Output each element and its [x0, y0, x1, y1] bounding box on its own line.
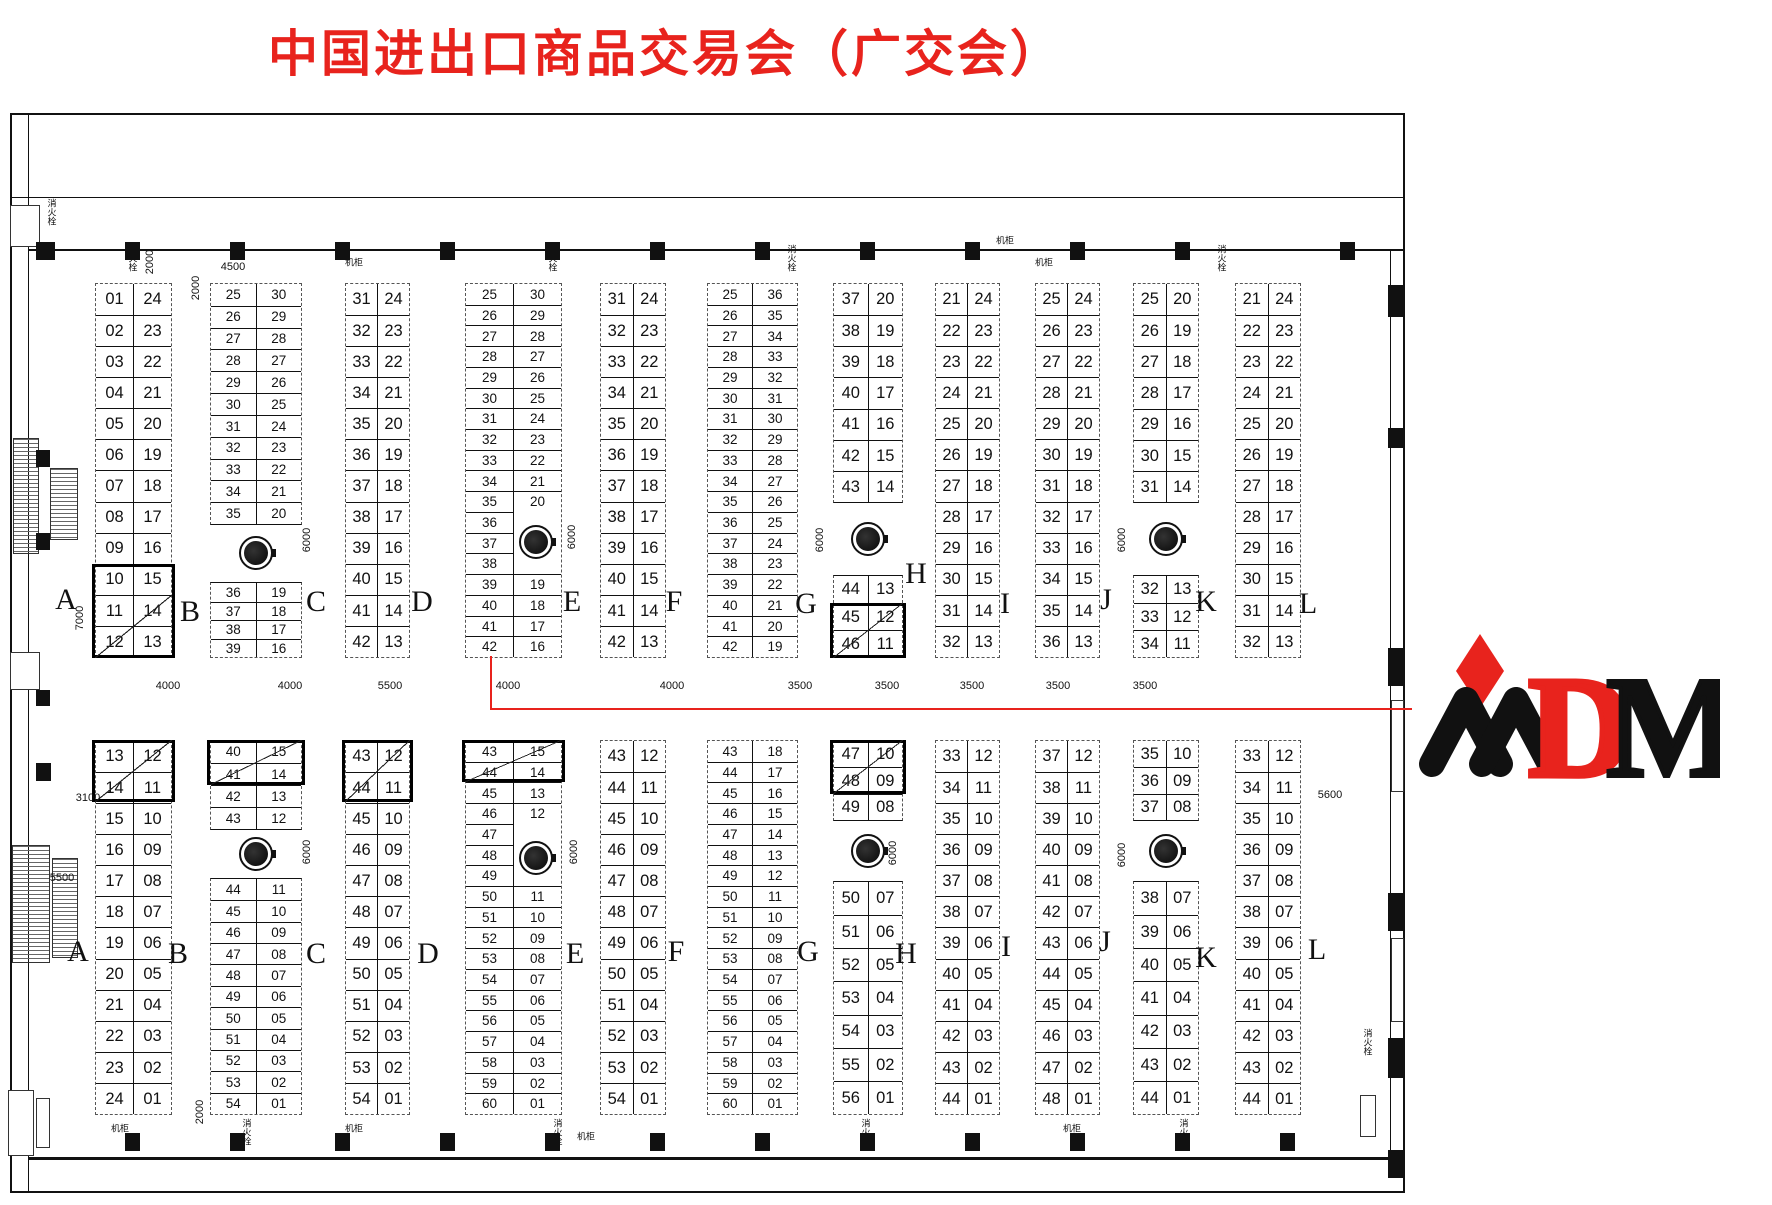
booth-cell: 44 — [936, 1083, 968, 1114]
booth-cell: 19 — [1269, 439, 1301, 470]
booth-row: 2629 — [466, 305, 561, 326]
booth-row: 3510 — [1134, 741, 1198, 767]
booth-cell: 01 — [1068, 1083, 1099, 1114]
booth-cell: 01 — [753, 1093, 797, 1114]
booth-cell: 32 — [601, 315, 634, 346]
booth-cell: 02 — [378, 1052, 409, 1083]
booth-cell: 17 — [134, 502, 171, 533]
booth-cell: 07 — [753, 969, 797, 990]
booth-cell: 31 — [708, 408, 753, 429]
booth-cell: 07 — [869, 882, 903, 915]
booth-cell: 39 — [1236, 927, 1269, 958]
booth-cell: 51 — [346, 990, 378, 1021]
booth-cell: 07 — [514, 969, 561, 990]
booth-cell: 45 — [601, 803, 634, 834]
booth-cell: 20 — [514, 491, 561, 512]
booth-cell: 05 — [96, 408, 134, 439]
booth-cell: 37 — [346, 470, 378, 501]
booth-cell: 35 — [936, 803, 968, 834]
booth-cell: 42 — [601, 626, 634, 657]
booth-cell: 41 — [601, 595, 634, 626]
booth-row: 3520 — [466, 491, 561, 512]
booth-row: 3510 — [936, 803, 999, 834]
structural-column — [755, 242, 770, 260]
booth-cell: 55 — [708, 990, 753, 1011]
booth-cell: 26 — [1134, 315, 1167, 346]
column-fan-icon — [519, 841, 553, 875]
booth-cell: 16 — [1167, 409, 1199, 440]
booth-cell: 29 — [1236, 533, 1269, 564]
booth-cell: 10 — [134, 803, 171, 834]
booth-row: 4912 — [708, 865, 797, 886]
booth-cell: 02 — [968, 1052, 999, 1083]
booth-cell: 49 — [834, 794, 869, 820]
booth-cell: 39 — [466, 574, 514, 595]
dimension-label: 3100 — [76, 792, 100, 804]
booth-row: 4609 — [601, 834, 665, 865]
booth-cell: 26 — [514, 367, 561, 388]
booth-cell: 23 — [634, 315, 666, 346]
dimension-label: 6000 — [1116, 528, 1128, 552]
booth-cell: 09 — [1068, 834, 1099, 865]
booth-cell: 25 — [211, 284, 257, 306]
booth-cell: 14 — [968, 595, 999, 626]
dimension-label: 4000 — [496, 680, 520, 692]
booth-row: 4714 — [708, 824, 797, 845]
booth-row: 5902 — [466, 1073, 561, 1094]
structural-column — [1070, 1133, 1085, 1151]
booth-cell: 37 — [211, 602, 257, 621]
booth-cell: 18 — [869, 346, 903, 377]
booth-row: 3025 — [211, 393, 301, 415]
booth-block: 351036093708 — [1133, 740, 1199, 821]
booth-cell: 25 — [753, 512, 797, 533]
booth-cell: 26 — [257, 371, 302, 393]
booth-row: 0520 — [96, 408, 171, 439]
booth-row: 4009 — [1036, 834, 1099, 865]
booth-row: 3619 — [601, 439, 665, 470]
booth-cell: 37 — [466, 533, 514, 554]
booth-cell: 12 — [257, 807, 302, 829]
booth-row: 2524 — [1036, 284, 1099, 315]
wall-column — [1388, 893, 1404, 931]
booth-cell: 53 — [601, 1052, 634, 1083]
aisle-letter-E: E — [563, 585, 581, 619]
booth-row: 0124 — [96, 284, 171, 315]
booth-row: 3625 — [708, 512, 797, 533]
booth-row: 4017 — [834, 377, 902, 408]
booth-cell: 23 — [1236, 346, 1269, 377]
booth-cell: 10 — [1167, 741, 1199, 767]
structural-column — [650, 1133, 665, 1151]
booth-row: 2728 — [466, 325, 561, 346]
booth-cell: 20 — [753, 616, 797, 637]
booth-cell: 11 — [634, 772, 666, 803]
fan-core — [524, 846, 548, 870]
booth-cell: 17 — [257, 620, 302, 639]
booth-cell: 48 — [708, 845, 753, 866]
booth-cell: 05 — [257, 1007, 302, 1028]
booth-row: 4612 — [466, 803, 561, 824]
booth-row: 3031 — [708, 388, 797, 409]
booth-row: 3817 — [346, 502, 409, 533]
booth-cell: 19 — [134, 439, 171, 470]
wall-label: 消火栓 — [46, 199, 59, 226]
booth-block: 2124222323222421252026192718281729163015… — [935, 283, 1000, 658]
dimension-label: 2000 — [144, 250, 156, 274]
booth-row: 2623 — [1036, 315, 1099, 346]
booth-cell: 22 — [96, 1021, 134, 1052]
booth-row: 2833 — [708, 346, 797, 367]
booth-cell: 27 — [708, 325, 753, 346]
booth-cell: 40 — [1036, 834, 1068, 865]
booth-cell: 50 — [834, 882, 869, 915]
booth-cell: 39 — [708, 574, 753, 595]
booth-block: 2524262327222821292030193118321733163415… — [1035, 283, 1100, 658]
booth-row: 5203 — [601, 1021, 665, 1052]
booth-cell: 52 — [211, 1050, 257, 1071]
booth-cell: 13 — [257, 785, 302, 807]
booth-cell: 22 — [134, 346, 171, 377]
booth-cell: 05 — [1269, 959, 1301, 990]
booth-row: 2322 — [1236, 346, 1300, 377]
booth-row: 3015 — [1134, 440, 1198, 471]
booth-row: 3411 — [1134, 630, 1198, 657]
booth-cell: 19 — [96, 927, 134, 958]
wall-column — [1388, 1150, 1404, 1178]
booth-cell: 36 — [708, 512, 753, 533]
booth-row: 4708 — [346, 865, 409, 896]
wall-fixture — [1391, 700, 1404, 792]
booth-cell: 38 — [346, 502, 378, 533]
booth-cell: 43 — [708, 741, 753, 762]
booth-cell: 38 — [1134, 882, 1167, 915]
booth-cell: 49 — [601, 927, 634, 958]
booth-row: 2916 — [936, 533, 999, 564]
booth-row: 3015 — [1236, 564, 1300, 595]
booth-cell: 01 — [1269, 1083, 1301, 1114]
booth-cell: 50 — [211, 1007, 257, 1028]
booth-cell: 10 — [968, 803, 999, 834]
booth-block: 2520261927182817291630153114 — [1133, 283, 1199, 503]
structural-column — [965, 1133, 980, 1151]
structural-column — [440, 1133, 455, 1151]
booth-cell: 35 — [1036, 595, 1068, 626]
booth-cell: 23 — [753, 553, 797, 574]
booth-cell: 24 — [514, 408, 561, 429]
booth-row: 4405 — [1036, 959, 1099, 990]
wall-fixture — [1391, 938, 1404, 1022]
booth-cell: 01 — [968, 1083, 999, 1114]
booth-table-upper-C: 3124322333223421352036193718381739164015… — [345, 283, 410, 658]
booth-cell: 28 — [1036, 377, 1068, 408]
booth-cell: 14 — [753, 824, 797, 845]
booth-cell: 30 — [936, 564, 968, 595]
booth-row: 4906 — [211, 986, 301, 1007]
booth-cell: 58 — [466, 1052, 514, 1073]
booth-cell: 38 — [834, 315, 869, 346]
booth-cell: 06 — [134, 927, 171, 958]
booth-row: 4510 — [211, 900, 301, 921]
booth-row: 2718 — [1236, 470, 1300, 501]
entrance-diagonal — [95, 740, 172, 802]
booth-cell: 04 — [96, 377, 134, 408]
booth-row: 5407 — [466, 969, 561, 990]
booth-cell: 30 — [466, 388, 514, 409]
dimension-label: 6000 — [301, 840, 313, 864]
fan-nub — [271, 850, 276, 858]
booth-cell: 46 — [1036, 1021, 1068, 1052]
fan-nub — [883, 535, 888, 543]
booth-cell: 10 — [1269, 803, 1301, 834]
booth-cell: 09 — [514, 927, 561, 948]
booth-cell: 12 — [1167, 603, 1199, 630]
column-fan-icon — [239, 837, 273, 871]
booth-block: 2124222323222421252026192718281729163015… — [1235, 283, 1301, 658]
booth-row: 5005 — [346, 959, 409, 990]
booth-cell: 51 — [834, 915, 869, 948]
booth-row: 5209 — [708, 927, 797, 948]
booth-cell: 40 — [936, 959, 968, 990]
structural-column — [125, 1133, 140, 1151]
booth-cell: 48 — [466, 845, 514, 866]
dimension-label: 4000 — [156, 680, 180, 692]
booth-row: 3807 — [1134, 882, 1198, 915]
booth-cell: 09 — [1269, 834, 1301, 865]
booth-block: 3807390640054104420343024401 — [1133, 881, 1199, 1115]
booth-row: 2520 — [1236, 408, 1300, 439]
booth-cell: 01 — [257, 1093, 302, 1114]
booth-row: 3217 — [1036, 502, 1099, 533]
booth-row: 3916 — [346, 533, 409, 564]
structural-column — [1070, 242, 1085, 260]
fan-core — [1154, 527, 1178, 551]
fan-core — [856, 839, 880, 863]
dimension-label: 6000 — [566, 525, 578, 549]
booth-cell: 40 — [834, 377, 869, 408]
booth-row: 3025 — [466, 388, 561, 409]
booth-row: 4401 — [1236, 1083, 1300, 1114]
booth-cell: 40 — [346, 564, 378, 595]
dimension-label: 7000 — [74, 606, 86, 630]
booth-row: 47 — [466, 824, 561, 845]
booth-row: 3520 — [601, 408, 665, 439]
booth-cell: 33 — [1036, 533, 1068, 564]
booth-cell: 13 — [1269, 626, 1301, 657]
locator-line-horizontal — [490, 708, 1412, 710]
booth-cell: 34 — [708, 470, 753, 491]
booth-row: 3124 — [346, 284, 409, 315]
booth-cell: 08 — [869, 794, 903, 820]
booth-cell: 52 — [466, 927, 514, 948]
booth-row: 2722 — [1036, 346, 1099, 377]
booth-table-upper-G: 2536263527342833293230313130322933283427… — [707, 283, 798, 658]
booth-cell: 35 — [601, 408, 634, 439]
booth-cell: 16 — [257, 639, 302, 658]
booth-cell: 26 — [211, 306, 257, 328]
aisle-letter-D: D — [417, 937, 439, 971]
booth-row: 2817 — [1134, 377, 1198, 408]
booth-cell: 13 — [634, 626, 666, 657]
booth-row: 5011 — [466, 886, 561, 907]
booth-cell: 08 — [1068, 865, 1099, 896]
booth-cell: 08 — [753, 948, 797, 969]
booth-block: 321333123411 — [1133, 575, 1199, 658]
booth-cell: 36 — [1134, 767, 1167, 793]
structural-column — [125, 242, 140, 260]
booth-cell: 31 — [936, 595, 968, 626]
booth-cell: 23 — [134, 315, 171, 346]
wall-fixture — [36, 1098, 50, 1148]
booth-block: 4312441145104609470848074906500551045203… — [600, 740, 666, 1115]
booth-cell: 38 — [466, 553, 514, 574]
booth-row: 4807 — [346, 896, 409, 927]
booth-cell: 46 — [708, 803, 753, 824]
booth-cell: 29 — [514, 305, 561, 326]
booth-cell: 52 — [601, 1021, 634, 1052]
booth-row: 2728 — [211, 328, 301, 350]
booth-row: 4510 — [346, 803, 409, 834]
booth-row: 2920 — [1036, 408, 1099, 439]
booth-row: 4807 — [211, 964, 301, 985]
booth-cell: 31 — [211, 415, 257, 437]
booth-cell: 19 — [514, 574, 561, 595]
floorplan-canvas: 中国进出口商品交易会（广交会） 012402230322042105200619… — [0, 0, 1772, 1205]
booth-row: 5401 — [211, 1093, 301, 1114]
booth-cell: 41 — [346, 595, 378, 626]
structural-column — [545, 1133, 560, 1151]
booth-row: 4203 — [1134, 1015, 1198, 1048]
booth-cell: 22 — [968, 346, 999, 377]
booth-row: 5104 — [346, 990, 409, 1021]
booth-cell: 59 — [466, 1073, 514, 1094]
wall-column — [36, 450, 50, 467]
booth-cell: 34 — [1036, 564, 1068, 595]
dimension-label: 3500 — [960, 680, 984, 692]
booth-cell: 31 — [1036, 470, 1068, 501]
booth-block: 4318441745164615471448134912501151105209… — [707, 740, 798, 1115]
booth-cell: 37 — [708, 533, 753, 554]
booth-cell: 33 — [753, 346, 797, 367]
booth-row: 5407 — [708, 969, 797, 990]
booth-cell: 16 — [134, 533, 171, 564]
booth-row: 0916 — [96, 533, 171, 564]
wall-fixture — [1360, 1095, 1376, 1137]
booth-cell: 28 — [211, 349, 257, 371]
booth-cell: 24 — [753, 533, 797, 554]
booth-cell: 27 — [1236, 470, 1269, 501]
booth-row: 3415 — [1036, 564, 1099, 595]
booth-cell: 36 — [1036, 626, 1068, 657]
booth-cell: 05 — [634, 959, 666, 990]
booth-cell: 22 — [753, 574, 797, 595]
booth-row: 3514 — [1036, 595, 1099, 626]
booth-row: 3223 — [211, 437, 301, 459]
booth-cell: 20 — [134, 408, 171, 439]
booth-cell: 26 — [708, 305, 753, 326]
fan-core — [1154, 839, 1178, 863]
wall-column — [36, 242, 51, 260]
booth-row: 38 — [466, 553, 561, 574]
booth-row: 4411 — [211, 879, 301, 900]
booth-cell: 60 — [466, 1093, 514, 1114]
booth-row: 3619 — [346, 439, 409, 470]
booth-row: 3708 — [936, 865, 999, 896]
booth-cell: 29 — [1134, 409, 1167, 440]
booth-cell: 16 — [968, 533, 999, 564]
booth-cell: 25 — [514, 388, 561, 409]
booth-row: 4513 — [466, 782, 561, 803]
booth-table-upper-E: 2530262927282827292630253124322333223421… — [465, 283, 562, 658]
booth-cell: 27 — [936, 470, 968, 501]
booth-cell: 33 — [936, 741, 968, 772]
booth-cell: 25 — [1236, 408, 1269, 439]
booth-cell: 35 — [466, 491, 514, 512]
booth-row: 3312 — [1236, 741, 1300, 772]
booth-cell: 36 — [601, 439, 634, 470]
booth-table-upper-A: 0124022303220421052006190718081709161015… — [95, 283, 172, 658]
booth-cell: 19 — [1068, 439, 1099, 470]
booth-cell: 34 — [601, 377, 634, 408]
booth-cell: 29 — [211, 371, 257, 393]
booth-row: 5605 — [466, 1010, 561, 1031]
booth-cell: 29 — [257, 306, 302, 328]
booth-row: 3724 — [708, 533, 797, 554]
booth-row: 4702 — [1036, 1052, 1099, 1083]
booth-row: 3807 — [936, 896, 999, 927]
booth-cell: 12 — [514, 803, 561, 824]
booth-row: 2124 — [936, 284, 999, 315]
booth-cell: 04 — [968, 990, 999, 1021]
booth-cell: 29 — [466, 367, 514, 388]
booth-row: 2619 — [1134, 315, 1198, 346]
booth-cell: 47 — [601, 865, 634, 896]
booth-block: 4315441445134612474849501151105209530854… — [465, 740, 562, 1115]
booth-row: 2203 — [96, 1021, 171, 1052]
booth-row: 4117 — [466, 616, 561, 637]
booth-cell: 18 — [514, 595, 561, 616]
booth-cell: 03 — [514, 1052, 561, 1073]
booth-cell: 02 — [1167, 1048, 1199, 1081]
booth-row: 4104 — [936, 990, 999, 1021]
booth-row: 4708 — [601, 865, 665, 896]
mdm-logo: D M — [1410, 616, 1720, 811]
booth-cell: 15 — [378, 564, 409, 595]
plan-content-layer: 0124022303220421052006190718081709161015… — [0, 0, 1772, 1205]
booth-cell: 38 — [211, 620, 257, 639]
booth-cell: 21 — [514, 470, 561, 491]
booth-cell: 24 — [134, 284, 171, 315]
booth-cell: 11 — [753, 886, 797, 907]
booth-cell: 44 — [708, 762, 753, 783]
booth-cell: 27 — [514, 346, 561, 367]
booth-cell: 20 — [1167, 284, 1199, 315]
booth-row: 3114 — [1134, 471, 1198, 502]
booth-cell: 17 — [634, 502, 666, 533]
booth-row: 3124 — [466, 408, 561, 429]
dimension-label: 4000 — [660, 680, 684, 692]
booth-cell: 11 — [257, 879, 302, 900]
booth-cell: 17 — [1167, 377, 1199, 408]
booth-cell: 18 — [134, 470, 171, 501]
booth-table-lower-G: 4318441745164615471448134912501151105209… — [707, 740, 798, 1115]
booth-cell: 21 — [257, 480, 302, 502]
booth-cell: 28 — [514, 325, 561, 346]
wall-label: 机柜 — [996, 234, 1014, 247]
booth-cell: 11 — [1269, 772, 1301, 803]
booth-cell: 54 — [708, 969, 753, 990]
booth-table-upper-I: 2124222323222421252026192718281729163015… — [935, 283, 1000, 658]
